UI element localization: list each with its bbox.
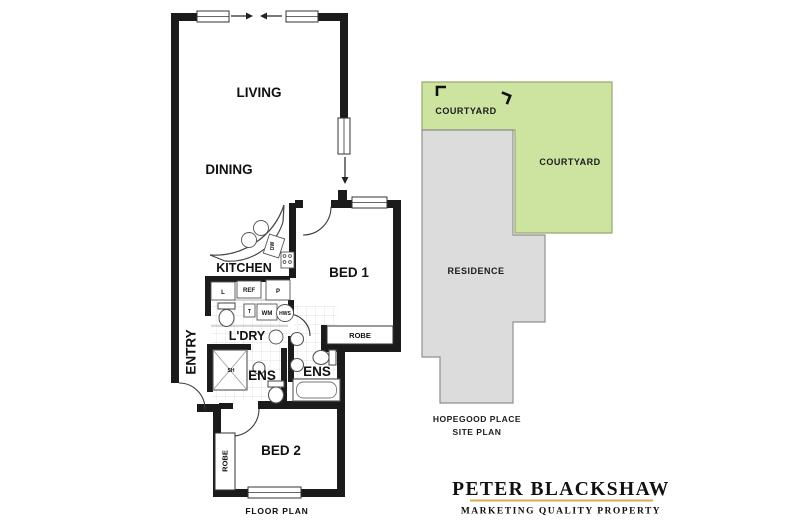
floor-plan: DW L REF P T WM HWS S (171, 11, 401, 516)
wall-window-stub (338, 190, 347, 202)
street-name-label: HOPEGOOD PLACE (433, 414, 521, 424)
bed2-door-arc (232, 409, 259, 436)
bed1-door-arc (303, 207, 331, 235)
laundry-label: L'DRY (229, 329, 266, 343)
floorplan-svg: DW L REF P T WM HWS S (0, 0, 790, 527)
toilet-icon (269, 387, 284, 403)
floor-plan-caption: FLOOR PLAN (245, 506, 308, 516)
wall-right-lower (337, 344, 345, 497)
site-plan: COURTYARD COURTYARD RESIDENCE HOPEGOOD P… (422, 82, 612, 437)
washing-machine-label: WM (262, 311, 273, 317)
wall-bed1-right (393, 200, 401, 350)
hot-water-label: HWS (279, 311, 291, 317)
sink-bowl-icon (242, 233, 257, 248)
dining-label: DINING (205, 162, 252, 177)
ens1-label: ENS (248, 368, 276, 383)
wall-hall-left-upper (205, 276, 211, 316)
wall-left (171, 13, 179, 383)
basin-icon (291, 359, 304, 372)
fridge-label: REF (243, 288, 255, 294)
living-label: LIVING (236, 85, 281, 100)
floorplan-page: DW L REF P T WM HWS S (0, 0, 790, 527)
slide-arrow-icon (342, 177, 349, 184)
agency-name: PETER BLACKSHAW (452, 479, 670, 500)
site-plan-caption: SITE PLAN (453, 427, 502, 437)
brand-logo: PETER BLACKSHAW MARKETING QUALITY PROPER… (452, 479, 670, 517)
sink-bowl-icon (254, 221, 269, 236)
bed1-label: BED 1 (329, 265, 369, 280)
wall-bed2-top-stub (219, 403, 233, 409)
linen-label: L (221, 290, 225, 296)
pantry-label: P (276, 289, 280, 295)
wall-robe1-left (321, 325, 327, 344)
cooktop-icon (281, 252, 294, 268)
residence-label: RESIDENCE (447, 266, 504, 276)
courtyard-right-label: COURTYARD (539, 157, 600, 167)
bed1-robe-label: ROBE (349, 331, 371, 340)
toilet-icon (329, 350, 336, 365)
laundry-tub-icon (269, 330, 283, 344)
toilet-icon (219, 310, 234, 327)
bed2-robe-label: ROBE (221, 450, 230, 472)
dishwasher-label: DW (270, 242, 276, 251)
ens2-label: ENS (303, 364, 331, 379)
shower-label: SH (228, 368, 235, 374)
trough-label: T (248, 309, 251, 315)
wall-ens-bottom (258, 401, 345, 409)
agency-tagline: MARKETING QUALITY PROPERTY (461, 507, 661, 517)
entry-label: ENTRY (184, 329, 199, 374)
kitchen-bench: DW (210, 205, 294, 268)
slide-arrow-icon (246, 13, 253, 20)
basin-icon (291, 333, 304, 346)
courtyard-top-label: COURTYARD (435, 106, 496, 116)
bed2-label: BED 2 (261, 443, 301, 458)
wall-hall-left-lower (207, 344, 213, 392)
kitchen-label: KITCHEN (216, 261, 272, 275)
slide-arrow-icon (260, 13, 267, 20)
wall-ens1-top (207, 344, 251, 350)
toilet-icon (313, 351, 329, 365)
toilet-icon (218, 303, 235, 309)
wall-bed1-top-stub (295, 200, 303, 208)
wall-right-upper (340, 13, 348, 118)
